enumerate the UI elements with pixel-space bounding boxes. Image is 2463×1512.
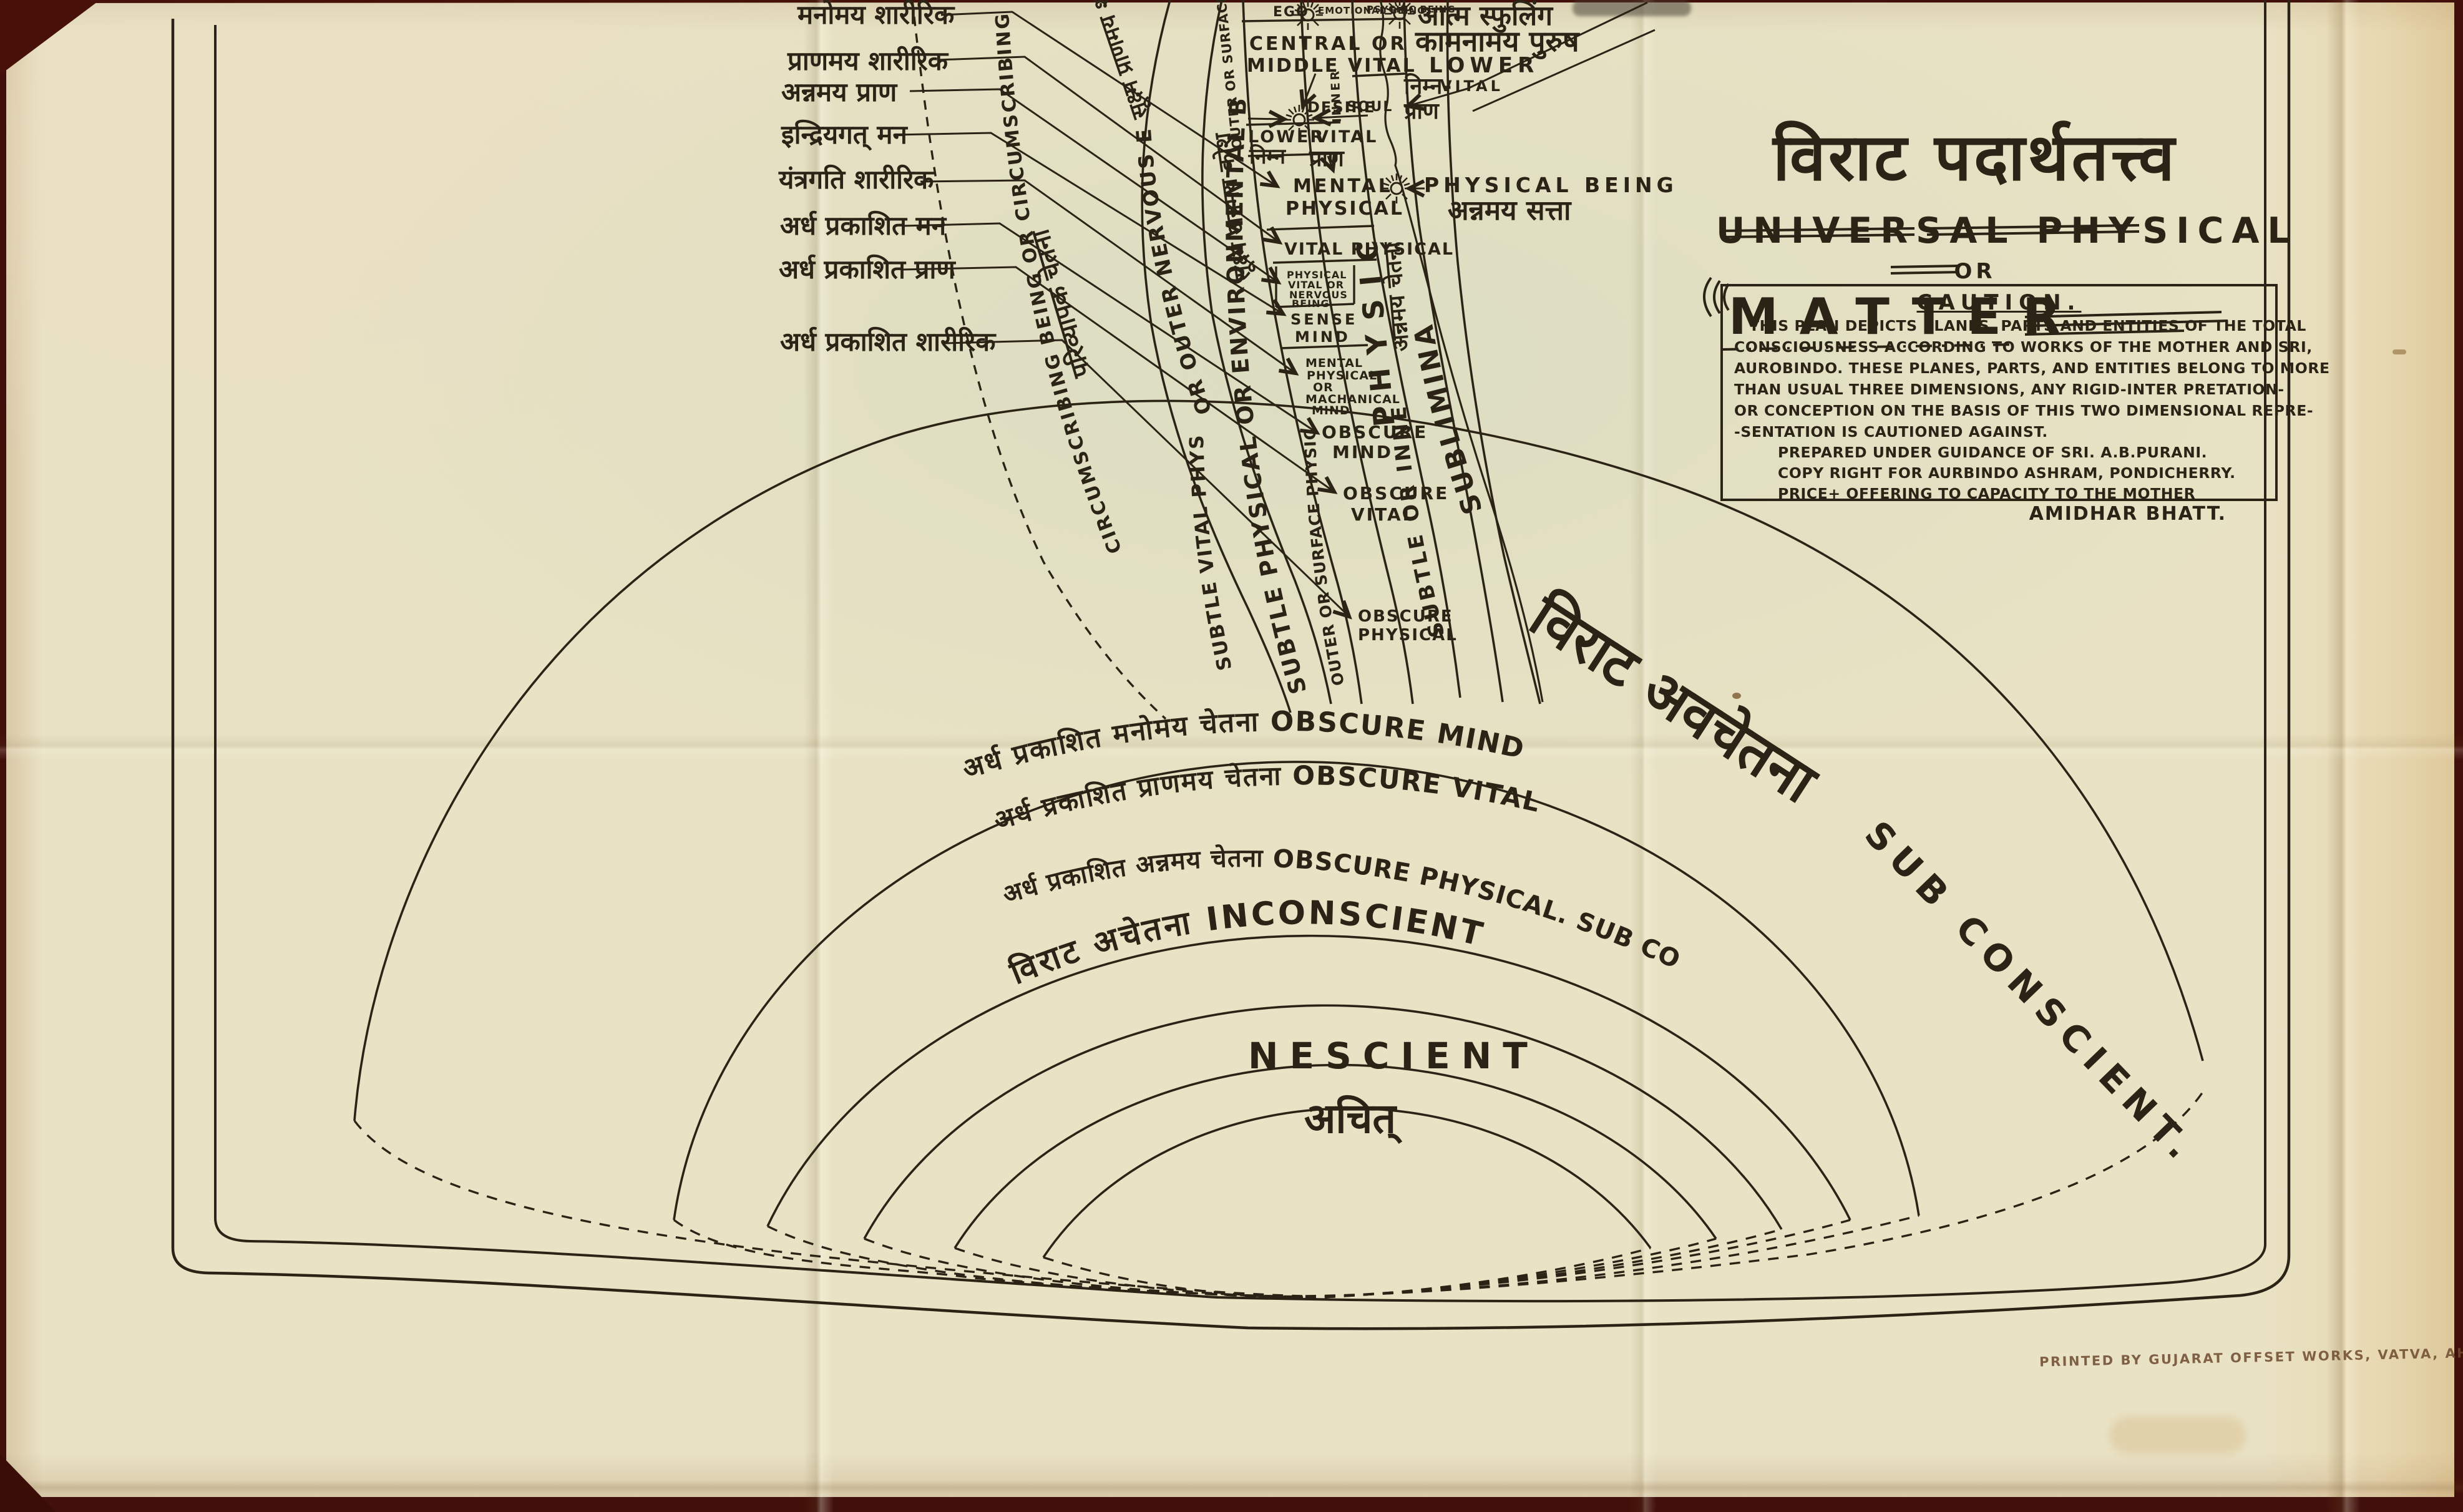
caution-signature: AMIDHAR BHATT. [1734,503,2226,525]
dome-dashed-tails [354,1092,2203,1298]
cell-pvnb-4: BEING [1292,298,1330,310]
dome-3 [768,936,1850,1226]
caution-line: -SENTATION IS CAUTIONED AGAINST. [1734,421,2264,442]
caution-line: THIS PLAN DEPICTS PLANES, PARTS AND ENTI… [1734,315,2264,336]
right-cluster: कामनामय पुरुष LOWER VITAL निम्न- प्राण P… [1403,24,1678,227]
left-label-ardha-prakashit-prana: अर्ध प्रकाशित प्राण [779,251,955,286]
cell-obscure-physical-2: PHYSICAL [1358,626,1458,645]
cell-obscure-vital-2: VITAL [1351,504,1416,525]
label-physical-being-dev: अन्नमय सत्ता [1448,195,1572,227]
nescient-devanagari: अचित् [1304,1095,1403,1144]
left-label-ardha-prakashit-man: अर्ध प्रकाशित मन [780,207,946,243]
left-label-annamaya-prana: अन्नमय प्राण [781,74,897,109]
cell-obscure-mind-1: OBSCURE [1322,422,1428,442]
cell-obscure-vital-1: OBSCURE [1343,483,1449,504]
cell-obscure-physical-1: OBSCURE [1358,607,1453,626]
svg-text:SUBTLE PHYSICAL OR ENVIRONMENT: SUBTLE PHYSICAL OR ENVIRONMENTAL BEING [0,0,1312,697]
caution-line: CONSCIOUSNESS ACCORDING TO WORKS OF THE … [1734,336,2264,358]
left-label-manomaya-sharirik: मनोमय शारीरिक [797,0,954,32]
cell-mach-5: MIND [1312,404,1350,417]
label-nimna: निम्न- [1403,73,1451,99]
cell-nimna: निम्न [1249,144,1286,169]
dome-arcs [354,401,2203,1257]
caution-credit: PREPARED UNDER GUIDANCE OF SRI. A.B.PURA… [1778,442,2264,463]
dome-2 [674,762,1919,1220]
band-outer-surface-vital: OUTER OR SURFACE VITAL [0,0,1245,150]
band-environmental: SUBTLE PHYSICAL OR ENVIRONMENTAL BEING [0,0,1312,697]
cell-ego: EGO [1273,4,1309,20]
cell-soul: SOUL [1347,99,1393,115]
cell-inner: INNER [1328,68,1344,122]
band-labels: CIRCUMSCRIBING BEING OR CIRCUMSCRIBING C… [0,0,1489,697]
title-or: OR [1716,259,2234,284]
cell-prana: प्राण [1309,146,1345,172]
dome-5 [955,1065,1716,1248]
cell-obscure-mind-2: MIND [1332,442,1393,462]
left-label-indriyagat-man: इन्द्रियगत् मन [781,116,907,152]
cell-central-or: CENTRAL OR [1249,33,1407,55]
caution-credit: COPY RIGHT FOR AURBINDO ASHRAM, PONDICHE… [1778,463,2264,484]
cell-mental-physical: PHYSICAL [1285,198,1404,220]
cell-vital-physical: VITAL PHYSICAL [1284,240,1454,259]
title-devanagari: विराट पदार्थतत्त्व [1716,111,2234,199]
caution-line: OR CONCEPTION ON THE BASIS OF THIS TWO D… [1734,400,2264,421]
caution-credit: PRICE+ OFFERING TO CAPACITY TO THE MOTHE… [1778,484,2264,504]
label-prana: प्राण [1403,99,1440,124]
svg-text:CIRCUMSCRIBING BEING OR CIRCUM: CIRCUMSCRIBING BEING OR CIRCUMSCRIBING C… [0,0,1126,557]
band-circumscribing: CIRCUMSCRIBING BEING OR CIRCUMSCRIBING C… [0,0,1126,557]
caution-box: CAUTION. THIS PLAN DEPICTS PLANES, PARTS… [1720,284,2278,501]
cell-vital: VITAL [1315,127,1378,147]
caution-line: THAN USUAL THREE DIMENSIONS, ANY RIGID-I… [1734,379,2264,400]
caution-line: AUROBINDO. THESE PLANES, PARTS, AND ENTI… [1734,358,2264,379]
svg-text:OUTER OR SURFACE VITAL: OUTER OR SURFACE VITAL [0,0,1245,150]
subconscient-english: SUB CONSCIENT. [1856,812,2207,1173]
left-label-ardha-prakashit-sharirik: अर्ध प्रकाशित शारीरिक [780,323,995,359]
nescient-english: NESCIENT [1248,1035,1539,1077]
left-label-pranamaya-sharirik: प्राणमय शारीरिक [788,42,948,78]
subconscient-devanagari: विराट अवचेतना [1517,582,1829,817]
caution-heading: CAUTION. [1734,290,2264,315]
cell-sense-mind: MIND [1295,328,1350,346]
title-english: UNIVERSAL PHYSICAL [1716,210,2234,251]
cell-sense: SENSE [1290,311,1357,328]
svg-text:अर्ध प्रकाशित प्राणमय चेतना: अर्ध प्रकाशित प्राणमय चेतना OBSCURE VITA… [990,760,1544,836]
scanned-chart-photo: { "title": { "devanagari": "विराट पदार्थ… [0,0,2463,1512]
cell-mental: MENTAL [1293,175,1393,197]
ring-obscure-vital: अर्ध प्रकाशित प्राणमय चेतना OBSCURE VITA… [990,760,1544,836]
label-physical-being-en: PHYSICAL BEING [1424,173,1678,197]
svg-text:INNER: INNER [1328,68,1344,122]
left-label-yantragati-sharirik: यंत्रगति शारीरिक [779,161,934,197]
cell-mach-1: MENTAL [1305,356,1363,370]
leader-lines-left [895,12,1349,617]
